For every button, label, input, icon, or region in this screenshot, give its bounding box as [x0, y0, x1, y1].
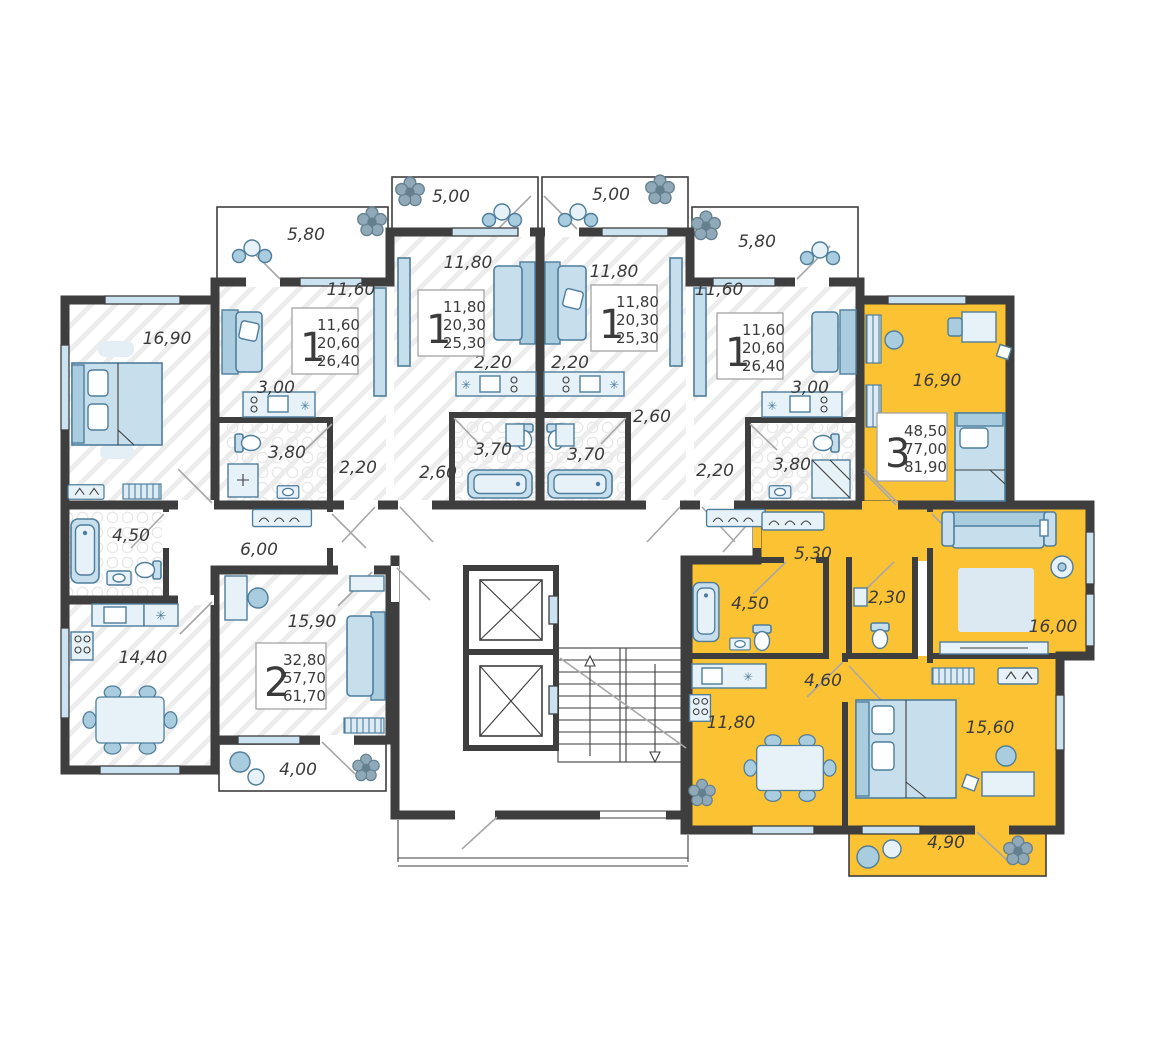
svg-text:2,30: 2,30 — [868, 588, 906, 608]
svg-text:5,80: 5,80 — [287, 225, 325, 245]
label-bath-area: 4,50 — [112, 526, 150, 546]
svg-text:11,80: 11,80 — [590, 262, 639, 282]
svg-text:3,00: 3,00 — [791, 378, 829, 398]
svg-text:5,80: 5,80 — [738, 232, 776, 252]
staircase — [558, 648, 686, 762]
label-balcony-area: 4,00 — [279, 760, 317, 780]
apartment-card-1d[interactable]: 1 11,60 20,60 26,40 — [717, 313, 785, 379]
label-bedroom-area: 16,90 — [143, 329, 192, 349]
svg-text:3,80: 3,80 — [773, 455, 811, 475]
svg-text:2,60: 2,60 — [419, 463, 457, 483]
svg-text:3,00: 3,00 — [257, 378, 295, 398]
svg-text:11,60: 11,60 — [327, 280, 376, 300]
svg-text:11,80: 11,80 — [616, 293, 659, 311]
elevator-shaft-1 — [466, 568, 558, 652]
svg-text:3,70: 3,70 — [567, 445, 605, 465]
svg-text:2,20: 2,20 — [551, 353, 589, 373]
svg-text:26,40: 26,40 — [742, 357, 785, 375]
svg-text:✳: ✳ — [156, 609, 167, 624]
apartment-card-1b[interactable]: 1 11,80 20,30 25,30 — [418, 290, 486, 356]
apartment-card-3[interactable]: 3 48,50 77,00 81,90 — [877, 413, 947, 481]
svg-text:2,20: 2,20 — [339, 458, 377, 478]
apartment-card-1a[interactable]: 1 11,60 20,60 26,40 — [292, 308, 360, 374]
svg-text:26,40: 26,40 — [317, 352, 360, 370]
svg-text:81,90: 81,90 — [904, 458, 947, 476]
svg-text:16,00: 16,00 — [1029, 617, 1078, 637]
svg-text:25,30: 25,30 — [616, 329, 659, 347]
svg-text:4,60: 4,60 — [804, 671, 842, 691]
svg-text:61,70: 61,70 — [283, 687, 326, 705]
svg-text:✳: ✳ — [609, 378, 619, 392]
svg-text:5,00: 5,00 — [592, 185, 630, 205]
svg-text:3,80: 3,80 — [268, 443, 306, 463]
building-core — [398, 568, 688, 866]
apartment-card-1c[interactable]: 1 11,80 20,30 25,30 — [591, 285, 659, 351]
svg-text:5,00: 5,00 — [432, 187, 470, 207]
svg-text:11,80: 11,80 — [443, 298, 486, 316]
elevator-shaft-2 — [466, 652, 558, 748]
label-hall-area: 6,00 — [240, 540, 278, 560]
svg-text:11,60: 11,60 — [317, 316, 360, 334]
label-room-area: 15,90 — [288, 612, 337, 632]
svg-text:11,80: 11,80 — [707, 713, 756, 733]
svg-text:20,60: 20,60 — [317, 334, 360, 352]
svg-text:4,90: 4,90 — [927, 833, 965, 853]
svg-text:15,60: 15,60 — [966, 718, 1015, 738]
svg-text:4,50: 4,50 — [731, 594, 769, 614]
svg-text:11,80: 11,80 — [444, 253, 493, 273]
svg-text:✳: ✳ — [461, 378, 471, 392]
svg-text:20,30: 20,30 — [616, 311, 659, 329]
svg-text:11,60: 11,60 — [695, 280, 744, 300]
y-hall-wardrobe — [762, 512, 824, 530]
svg-text:2,60: 2,60 — [633, 407, 671, 427]
label-kitchen-area: 14,40 — [119, 648, 168, 668]
svg-text:32,80: 32,80 — [283, 651, 326, 669]
floor-plan-page: ✳ ✳ — [0, 0, 1150, 1040]
svg-text:57,70: 57,70 — [283, 669, 326, 687]
svg-text:20,30: 20,30 — [443, 316, 486, 334]
svg-text:16,90: 16,90 — [913, 371, 962, 391]
svg-text:11,60: 11,60 — [742, 321, 785, 339]
apartment-card-2[interactable]: 2 32,80 57,70 61,70 — [256, 643, 326, 709]
svg-text:✳: ✳ — [743, 670, 753, 684]
svg-text:3,70: 3,70 — [474, 440, 512, 460]
svg-text:48,50: 48,50 — [904, 422, 947, 440]
svg-text:✳: ✳ — [767, 399, 777, 413]
svg-text:✳: ✳ — [300, 399, 310, 413]
svg-text:20,60: 20,60 — [742, 339, 785, 357]
svg-text:5,30: 5,30 — [794, 544, 832, 564]
floor-plan-canvas: ✳ ✳ — [0, 0, 1150, 1040]
svg-text:25,30: 25,30 — [443, 334, 486, 352]
svg-text:77,00: 77,00 — [904, 440, 947, 458]
svg-text:2,20: 2,20 — [696, 461, 734, 481]
